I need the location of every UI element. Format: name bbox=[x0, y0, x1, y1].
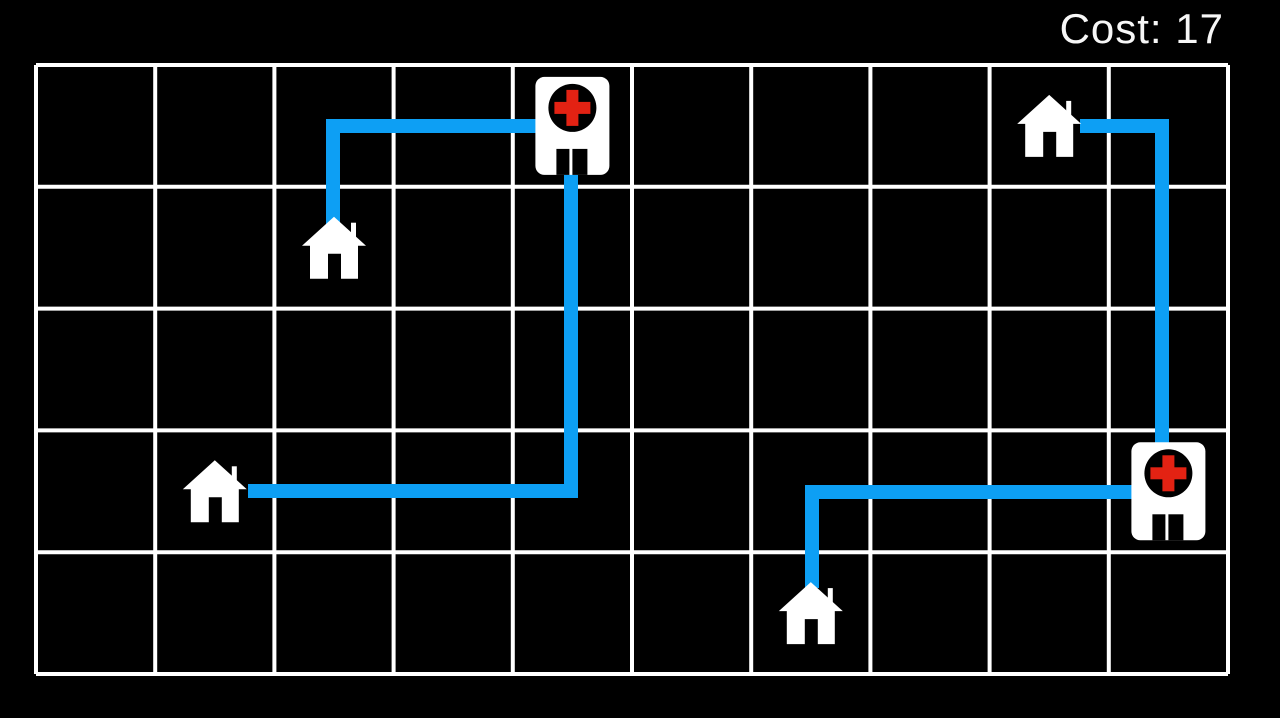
route-house3-hospital1 bbox=[248, 168, 571, 491]
route-house2-hospital2 bbox=[1080, 126, 1162, 450]
house-1-house-icon[interactable] bbox=[302, 217, 366, 279]
grid bbox=[36, 65, 1228, 674]
house-2-house-icon[interactable] bbox=[1017, 95, 1081, 157]
hospital-1-hospital-icon[interactable] bbox=[535, 77, 609, 175]
hospital-2-hospital-icon[interactable] bbox=[1131, 442, 1205, 540]
routes bbox=[248, 126, 1162, 588]
route-house4-hospital2 bbox=[812, 492, 1135, 588]
hud: Cost: 17 bbox=[1060, 6, 1224, 52]
game-screen: Cost: 17 bbox=[0, 0, 1280, 718]
house-4-house-icon[interactable] bbox=[779, 582, 843, 644]
game-board[interactable] bbox=[0, 0, 1280, 718]
cost-label: Cost: 17 bbox=[1060, 5, 1224, 52]
house-3-house-icon[interactable] bbox=[183, 460, 247, 522]
